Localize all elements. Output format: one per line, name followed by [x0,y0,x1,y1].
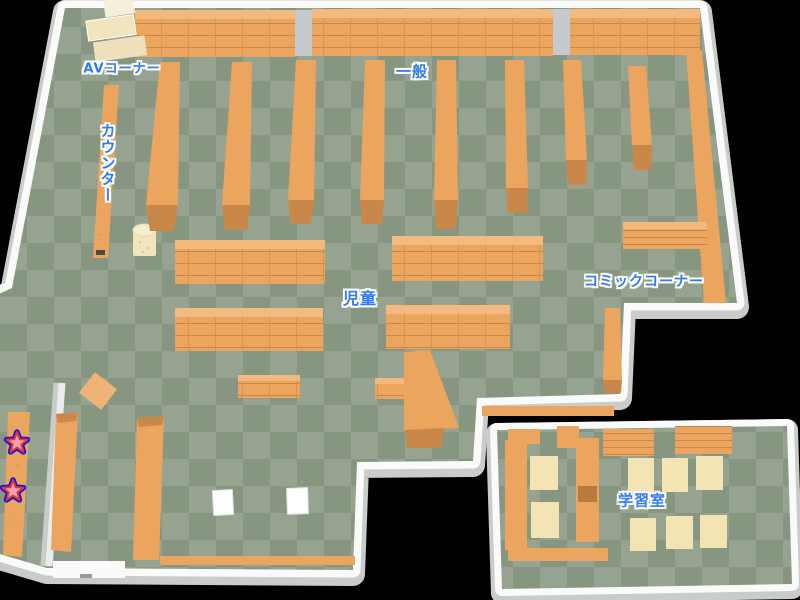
study-table [628,458,654,492]
study-table [700,515,727,548]
divider-door [578,486,597,502]
floor-box [287,488,309,515]
label-comic-corner: コミックコーナー [584,271,704,291]
study-table [531,502,559,538]
study-table [696,456,723,490]
floor-box [212,489,233,515]
library-floor-map: AVコーナー 一般 カウンター 児童 コミックコーナー 学習室 [0,0,800,600]
label-av-corner: AVコーナー [83,58,160,77]
study-table [666,516,693,549]
wing-shelf-b [133,416,164,560]
label-children: 児童 [343,285,377,309]
study-table [630,518,656,551]
bottom-wall-shelf-strip [160,556,355,565]
label-counter: カウンター [98,123,119,203]
wall-pillar [553,9,570,55]
top-wall-shelves [135,9,700,57]
floor-map-graphic [0,0,800,600]
wall-pillar [295,10,312,56]
label-general: 一般 [396,61,428,82]
study-table [662,458,688,492]
entrance-door-handle [80,574,92,578]
label-study-room: 学習室 [618,490,666,511]
study-table [530,456,558,490]
